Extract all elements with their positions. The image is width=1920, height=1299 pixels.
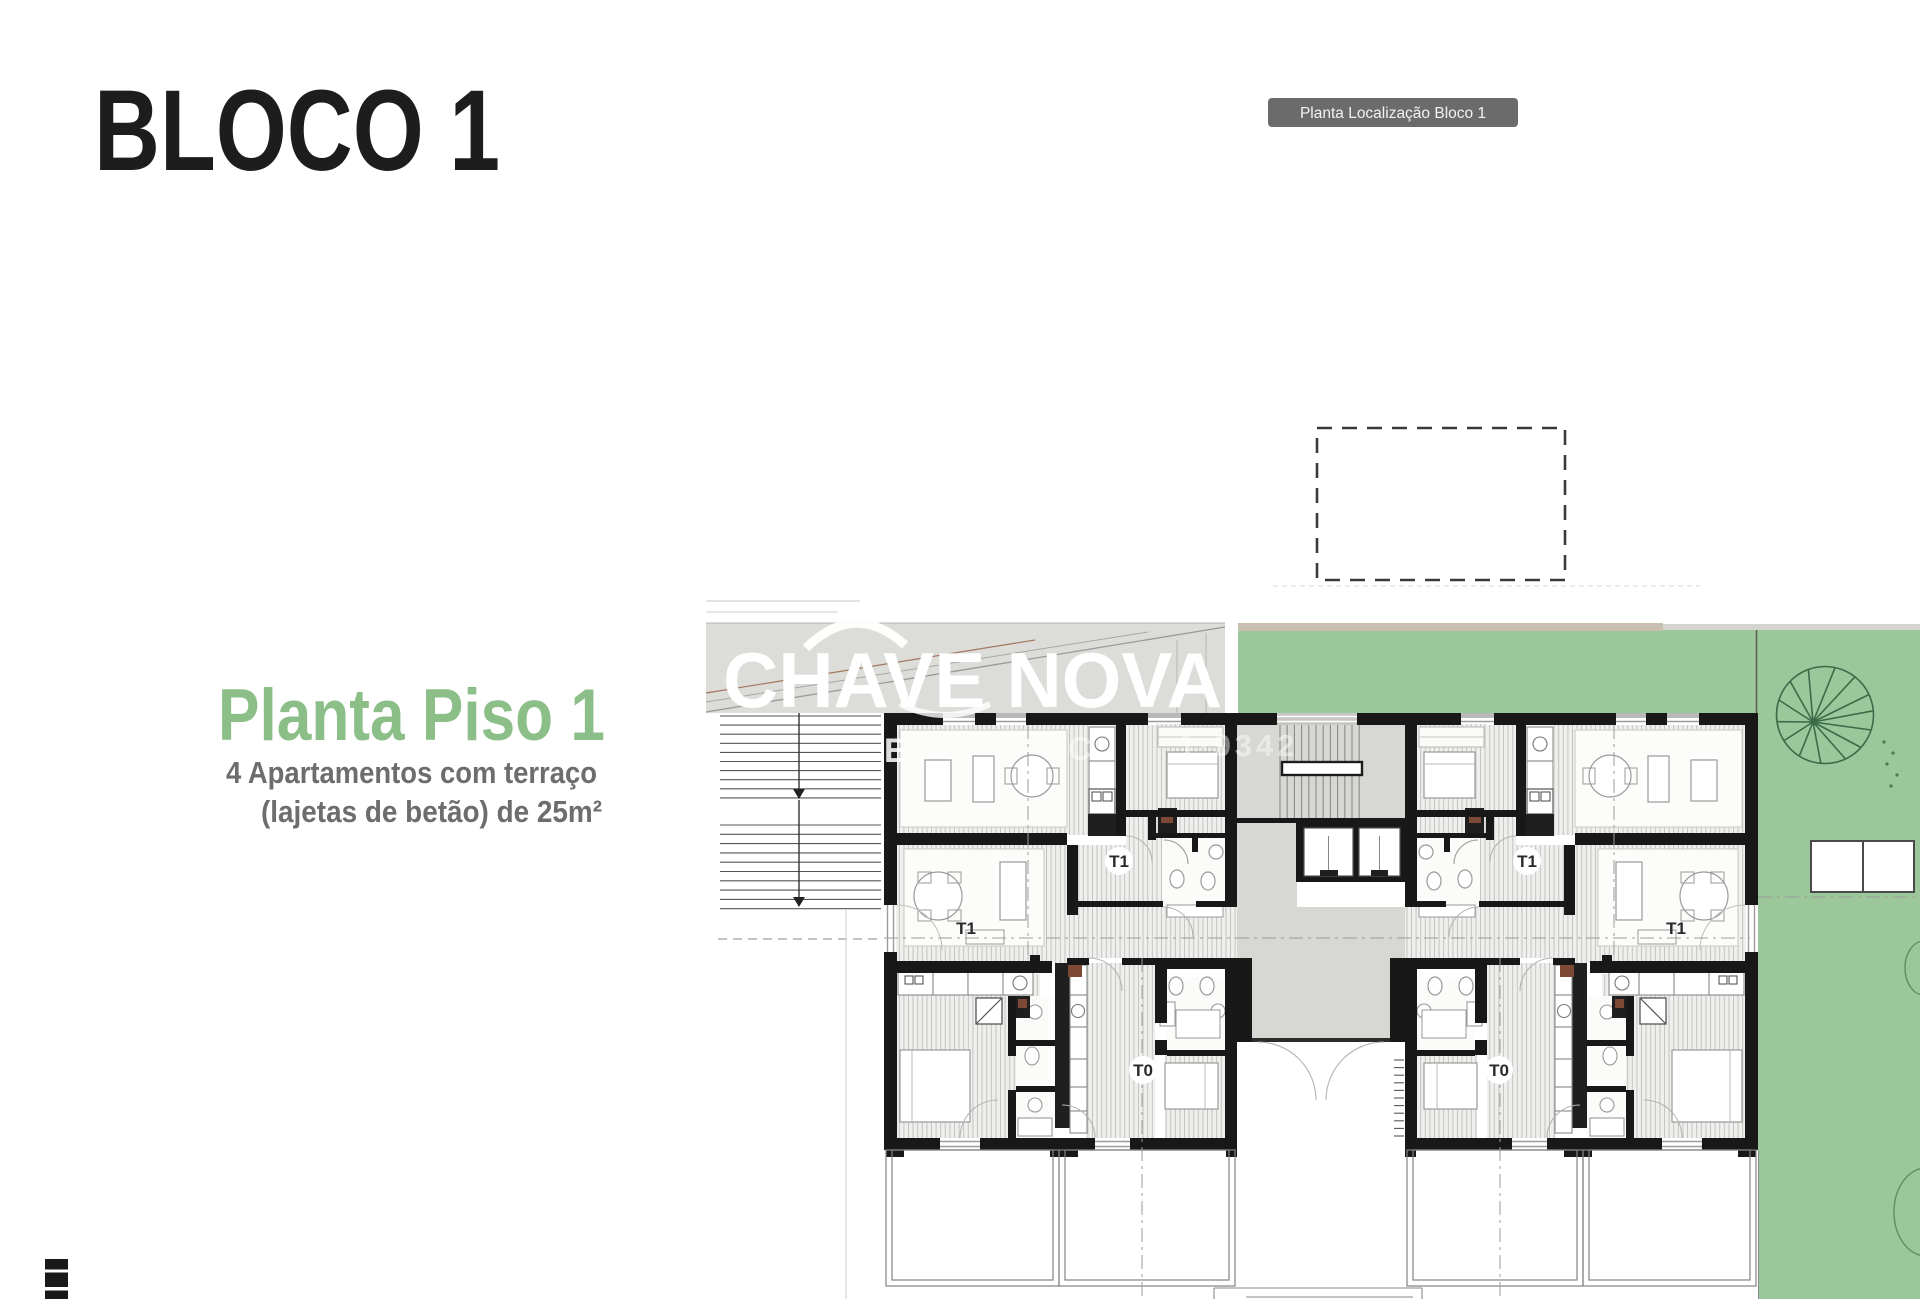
svg-text:E: E [884, 732, 907, 770]
svg-text:(lajetas de betão) de 25m²: (lajetas de betão) de 25m² [261, 794, 602, 829]
svg-text:Planta Piso 1: Planta Piso 1 [218, 675, 605, 756]
svg-text:C: C [1068, 730, 1092, 767]
svg-text:4 Apartamentos com terraço: 4 Apartamentos com terraço [226, 755, 597, 790]
svg-text:1·9342: 1·9342 [1178, 728, 1299, 763]
svg-text:T1: T1 [1109, 852, 1129, 871]
svg-text:T1: T1 [956, 919, 976, 938]
svg-text:T1: T1 [1666, 919, 1686, 938]
svg-text:T0: T0 [1489, 1061, 1509, 1080]
svg-text:T1: T1 [1517, 852, 1537, 871]
svg-text:BLOCO 1: BLOCO 1 [94, 67, 500, 195]
svg-text:Planta Localização Bloco 1: Planta Localização Bloco 1 [1300, 105, 1486, 122]
svg-text:T0: T0 [1133, 1061, 1153, 1080]
